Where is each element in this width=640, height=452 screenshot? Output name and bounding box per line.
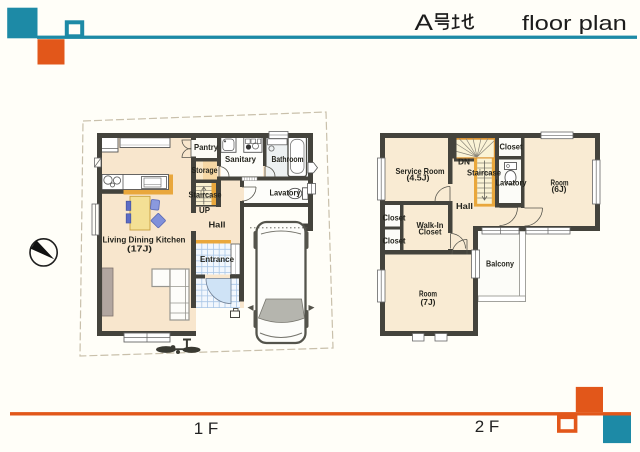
svg-text:1 F: 1 F (194, 419, 219, 438)
svg-text:Balcony: Balcony (486, 259, 514, 269)
svg-text:Pantry: Pantry (194, 142, 218, 152)
svg-text:UP: UP (199, 205, 210, 215)
svg-text:Closet: Closet (419, 227, 442, 237)
svg-text:Bathroom: Bathroom (272, 154, 304, 164)
svg-text:(17J): (17J) (127, 244, 152, 254)
svg-text:Closet: Closet (383, 213, 406, 223)
svg-text:Sanitary: Sanitary (225, 154, 256, 164)
svg-text:A: A (415, 10, 434, 35)
svg-text:Hall: Hall (456, 201, 473, 211)
svg-text:DN: DN (458, 157, 470, 167)
svg-text:(7J): (7J) (421, 297, 436, 307)
svg-text:Lavatory: Lavatory (270, 188, 301, 198)
svg-text:Entrance: Entrance (200, 254, 234, 264)
svg-text:Lavatory: Lavatory (496, 178, 527, 188)
svg-text:(6J): (6J) (552, 184, 567, 194)
svg-text:Hall: Hall (209, 220, 226, 230)
svg-text:Closet: Closet (383, 236, 406, 246)
svg-text:(4.5J): (4.5J) (407, 173, 430, 183)
svg-text:Staircase: Staircase (467, 168, 501, 178)
svg-text:floor plan: floor plan (522, 12, 627, 35)
svg-text:Storage: Storage (192, 165, 218, 175)
svg-text:Closet: Closet (500, 142, 523, 152)
svg-text:Staircase: Staircase (189, 190, 222, 200)
svg-text:2 F: 2 F (475, 417, 500, 436)
